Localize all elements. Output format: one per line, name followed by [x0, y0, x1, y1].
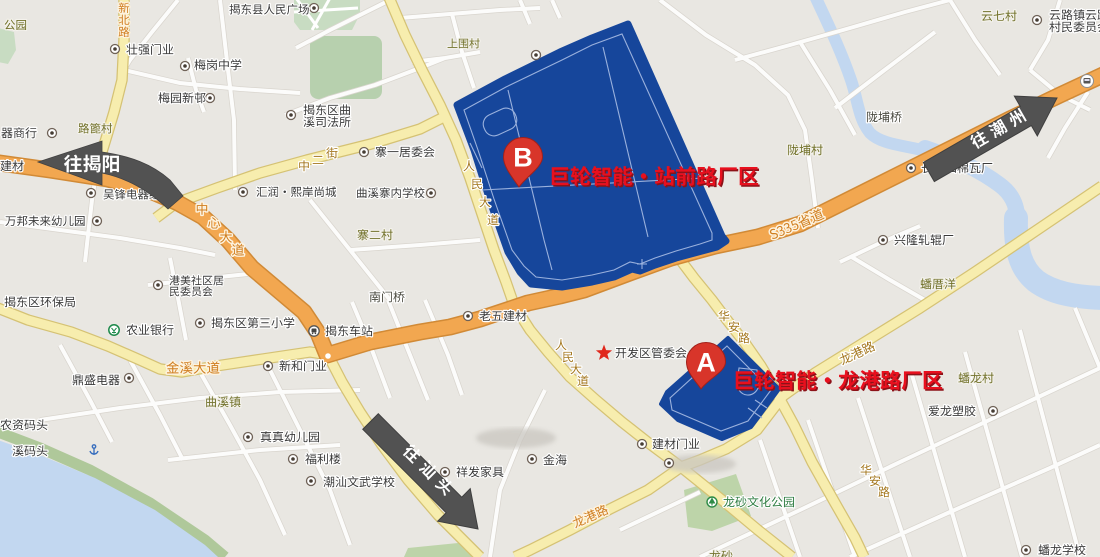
svg-text:B: B	[513, 143, 533, 173]
svg-text:A: A	[696, 348, 716, 378]
